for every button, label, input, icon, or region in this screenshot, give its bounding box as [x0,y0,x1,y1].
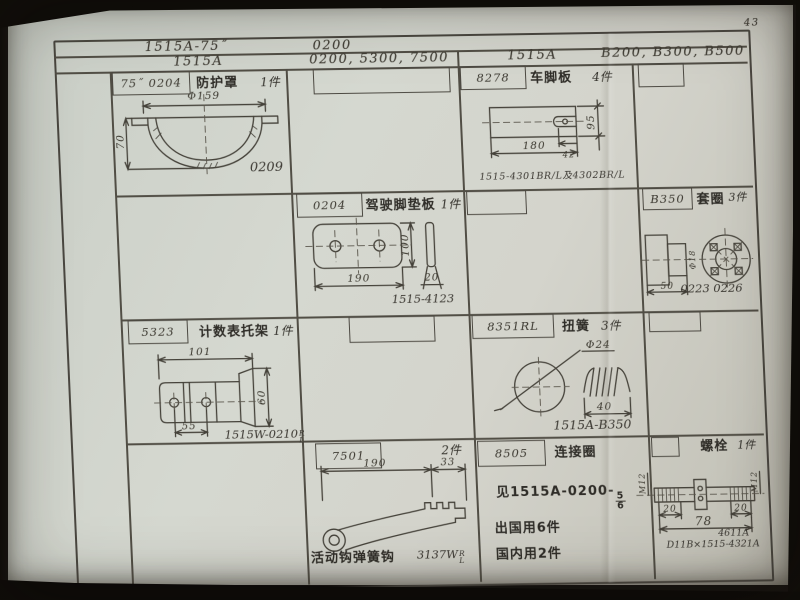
empty-part-number-box [638,63,685,88]
dim-end: 33 [440,457,455,468]
dim-diameter: Φ159 [187,90,220,103]
part-qty: 3件 [728,189,747,205]
catalog-table: 43 1515A-75˝ 0200 1515A 0200, 5300, 7500… [0,0,800,591]
ref-number: 0223 0226 [680,281,743,296]
dim-height: 100 [399,233,412,256]
ref-number-top: 4611A [718,528,750,539]
photo-edge-left [0,0,8,600]
thread-size-right: M12 [749,471,759,493]
foot-plate-drawing: 180 95 42 [467,97,634,166]
part-title: 扭簧 [562,315,591,334]
dim-length: 190 [363,457,387,469]
dim-total: 78 [695,514,713,528]
header-model-group-left: 0200, 5300, 7500 [309,50,449,67]
part-number: 5323 [141,325,175,340]
dim-width: 190 [347,273,371,285]
part-qty: 1件 [440,195,460,212]
lever-drawing: 190 33 [311,456,479,551]
photo-of-parts-catalog-page: 43 1515A-75˝ 0200 1515A 0200, 5300, 7500… [0,0,800,600]
part-title: 套圈 [696,188,725,207]
note-export: 出国用6件 [494,517,561,537]
ref-number-text: 3137W [417,547,459,562]
fraction: 56 [615,492,625,511]
ref-number-text: 1515W-0210 [224,427,298,442]
empty-part-number-box [313,66,451,94]
bolt-drawing: M12 M12 20 20 78 [633,449,769,539]
part-title: 车脚板 [530,66,573,86]
lever-outline [320,464,469,551]
part-number-box: B350 [642,188,693,211]
ref-rl-suffix: RL [299,431,305,444]
part-number: 8278 [476,70,510,85]
header-model-1515a-75: 1515A-75˝ [144,39,228,55]
ref-number: 1515-4123 [391,291,454,306]
ref-number: 0209 [250,160,284,176]
thread-size-left: M12 [637,473,647,495]
dim-length: 40 [596,401,613,413]
dim-diameter: Φ24 [586,339,611,351]
centerline [636,493,764,495]
part-qty: 1件 [273,322,293,339]
part-number-box: 8351RL [471,314,554,339]
part-number: 8505 [495,446,529,461]
dim-height: 70 [114,134,127,150]
part-number: B350 [650,192,685,207]
page-number: 43 [744,17,760,28]
part-number-box: 8278 [460,65,527,90]
centerline [204,94,207,174]
dim-holes: 55 [182,421,197,432]
dim-length: 101 [188,346,212,358]
dim-thread-left: 20 [662,505,677,515]
note-domestic: 国内用2件 [495,543,562,563]
see-reference: 见1515A-0200-56 [496,480,626,513]
part-number: 0204 [313,198,347,213]
torsion-spring-drawing: Φ24 40 [488,337,642,425]
dim-diameter: Φ18 [688,250,698,270]
header-model-1515a-right: 1515A [507,48,558,64]
ref-rl-suffix: RL [459,551,465,564]
dim-height: 95 [585,114,598,130]
part-qty: 4件 [592,68,612,85]
part-number-box: 0204 [296,193,363,218]
ref-number: 1515A-B350 [553,417,632,433]
dim-width: 180 [522,140,546,152]
empty-part-number-box [648,311,701,332]
empty-part-number-box [466,190,527,215]
guard-cover-outline [122,99,279,169]
part-number: 8351RL [487,319,539,334]
centerline [482,121,586,123]
empty-part-number-box [348,316,435,343]
lever-caption: 活动钩弹簧钩 [311,546,396,566]
dim-slot: 42 [561,150,575,160]
ref-number: 1515W-0210RL [224,427,305,445]
dim-thickness: 20 [423,273,439,284]
header-model-group-right: B200, B300, B500 [601,44,745,61]
dim-thread-right: 20 [733,504,748,514]
dim-height: 60 [256,390,269,406]
part-title: 驾驶脚垫板 [365,194,436,214]
part-title: 计数表托架 [199,320,270,340]
dim-length: 50 [660,282,674,292]
paper-sheet: 43 1515A-75˝ 0200 1515A 0200, 5300, 7500… [8,5,793,585]
part-number-box: 5323 [128,319,189,344]
header-model-1515a: 1515A [173,54,224,70]
centerlines [510,356,571,419]
ref-number: 1515-4301BR/L及4302BR/L [479,167,625,183]
part-qty: 3件 [601,317,621,334]
part-title: 连接圈 [554,441,597,461]
part-number-box: 8505 [477,440,546,467]
ref-number: 3137WRL [417,547,465,565]
ref-number-bottom: D11B×1515-4321A [666,539,760,551]
